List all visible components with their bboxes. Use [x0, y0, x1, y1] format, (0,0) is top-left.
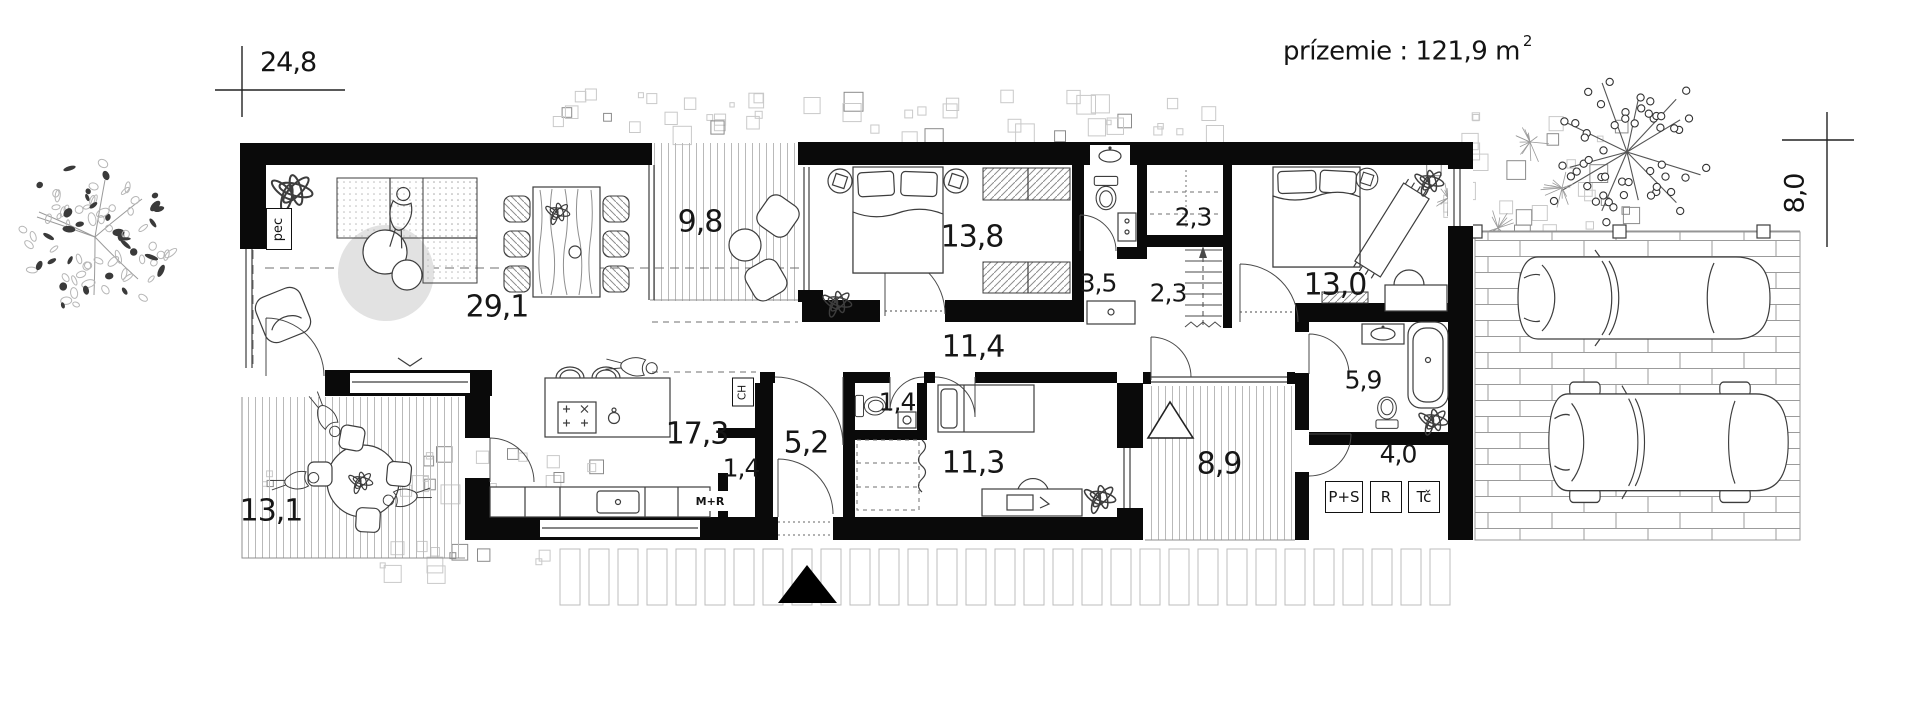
room-label-bath-small: 3,5 — [1080, 269, 1117, 298]
room-label-terrace-bottom: 13,1 — [240, 494, 303, 529]
ch-tag: CH — [732, 378, 754, 407]
mr-tag-text: M+R — [696, 495, 725, 508]
room-label-tech: 4,0 — [1380, 440, 1417, 469]
r-tag: R — [1370, 481, 1402, 513]
title-superscript: 2 — [1523, 32, 1532, 50]
person-cooking — [605, 355, 658, 378]
rug-runner — [1352, 178, 1433, 282]
room-label-living: 29,1 — [466, 290, 529, 325]
living-room-furniture — [252, 174, 629, 346]
dimension-width: 24,8 — [260, 47, 316, 78]
tc-tag: Tč — [1408, 481, 1440, 513]
room-label-terrace-top: 9,8 — [678, 205, 723, 240]
ps-tag-text: P+S — [1328, 488, 1359, 506]
driveway — [1469, 225, 1800, 540]
room-label-entry-porch: 8,9 — [1197, 447, 1242, 482]
desk — [1385, 285, 1447, 311]
bar-stool — [556, 367, 584, 378]
r-tag-text: R — [1381, 488, 1391, 506]
room-label-closet-upper: 2,3 — [1175, 203, 1212, 232]
stove-tag-text: pec — [272, 217, 287, 240]
stove-tag: pec — [266, 208, 292, 250]
plant-living — [269, 174, 314, 213]
room-label-entry-hall: 5,2 — [784, 426, 829, 461]
dimension-height: 8,0 — [1779, 174, 1810, 214]
dining-table — [504, 187, 629, 297]
room-label-pantry: 1,4 — [723, 454, 760, 483]
room-label-bedroom-small: 11,3 — [942, 446, 1005, 481]
wardrobe — [983, 262, 1070, 293]
stairs — [1185, 246, 1222, 327]
island — [545, 378, 670, 437]
wardrobe — [983, 168, 1070, 200]
room-label-wc: 1,4 — [879, 388, 916, 417]
room-label-bedroom-right: 13,0 — [1304, 268, 1367, 303]
pouf — [392, 260, 422, 290]
ps-tag: P+S — [1325, 481, 1363, 513]
room-label-hallway: 11,4 — [942, 330, 1005, 365]
room-label-bedroom-left: 13,8 — [941, 220, 1004, 255]
room-label-bathroom: 5,9 — [1345, 366, 1382, 395]
curtain — [919, 440, 926, 492]
page-title: prízemie : 121,9 m2 — [1283, 36, 1529, 67]
shower-tray — [1087, 301, 1135, 324]
desk — [982, 489, 1082, 516]
mr-tag: M+R — [692, 491, 728, 511]
room-label-kitchen: 17,3 — [666, 417, 729, 452]
room-label-closet-lower: 2,3 — [1150, 279, 1187, 308]
tc-tag-text: Tč — [1417, 488, 1432, 506]
car-bottom — [1549, 382, 1788, 502]
entrance-triangle-marker — [778, 565, 837, 603]
floor-plan-canvas: prízemie : 121,9 m2 24,8 8,0 29,1 9,8 13… — [0, 0, 1920, 719]
ch-tag-text: CH — [737, 384, 749, 399]
car-top — [1518, 250, 1770, 346]
